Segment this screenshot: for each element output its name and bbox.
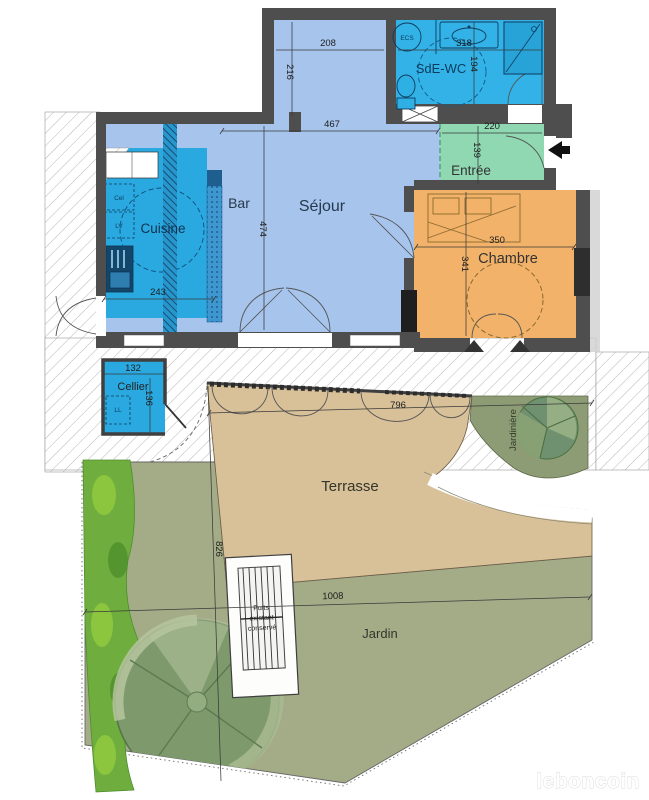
dim-139: 139 (471, 142, 482, 158)
dim-243: 243 (150, 287, 166, 298)
label-chambre: Chambre (478, 251, 538, 267)
appliance-lv-label: LV (115, 223, 123, 230)
dim-318: 318 (456, 38, 472, 49)
appliance-cel-label: Cel (114, 195, 124, 202)
label-bar: Bar (228, 195, 250, 211)
label-sde-wc: SdE-WC (416, 61, 467, 76)
jardiniere-tree-icon (515, 397, 578, 459)
leboncoin-watermark: leboncoin (536, 770, 640, 793)
label-terrasse: Terrasse (321, 478, 379, 495)
dim-1008: 1008 (322, 591, 343, 603)
well-label-line3: conservé (248, 624, 277, 632)
dim-467: 467 (324, 119, 340, 130)
toilet-icon (397, 75, 415, 109)
appliance-ll-label: LL (114, 407, 122, 414)
dim-341: 341 (459, 256, 470, 272)
duct-strip-hatch (163, 124, 177, 348)
dim-220: 220 (484, 121, 500, 132)
well-label-line2: existant (249, 614, 274, 622)
floor-plan-svg: Puits existant conservé Cel LV (0, 0, 649, 800)
right-ledge (590, 190, 600, 352)
dim-796: 796 (390, 400, 406, 411)
ecs-label: ECS (400, 35, 414, 42)
label-entree: Entrée (451, 163, 491, 178)
label-cuisine: Cuisine (140, 221, 185, 236)
dim-194: 194 (468, 56, 479, 72)
well-label-line1: Puits (253, 605, 269, 613)
dim-216: 216 (284, 64, 295, 80)
label-jardiniere: Jardinière (508, 409, 519, 451)
shower-icon (504, 22, 542, 74)
dim-208: 208 (320, 38, 336, 49)
dim-350: 350 (489, 235, 505, 246)
bush-blob (92, 475, 116, 515)
stove-icon (106, 246, 133, 292)
well: Puits existant conservé (225, 554, 298, 697)
dim-132: 132 (125, 363, 141, 374)
label-jardin: Jardin (362, 626, 397, 641)
dim-474: 474 (257, 221, 268, 237)
floor-plan-image: Puits existant conservé Cel LV (0, 0, 649, 800)
label-sejour: Séjour (299, 198, 346, 215)
dim-826: 826 (213, 541, 224, 557)
label-cellier: Cellier (117, 381, 149, 393)
